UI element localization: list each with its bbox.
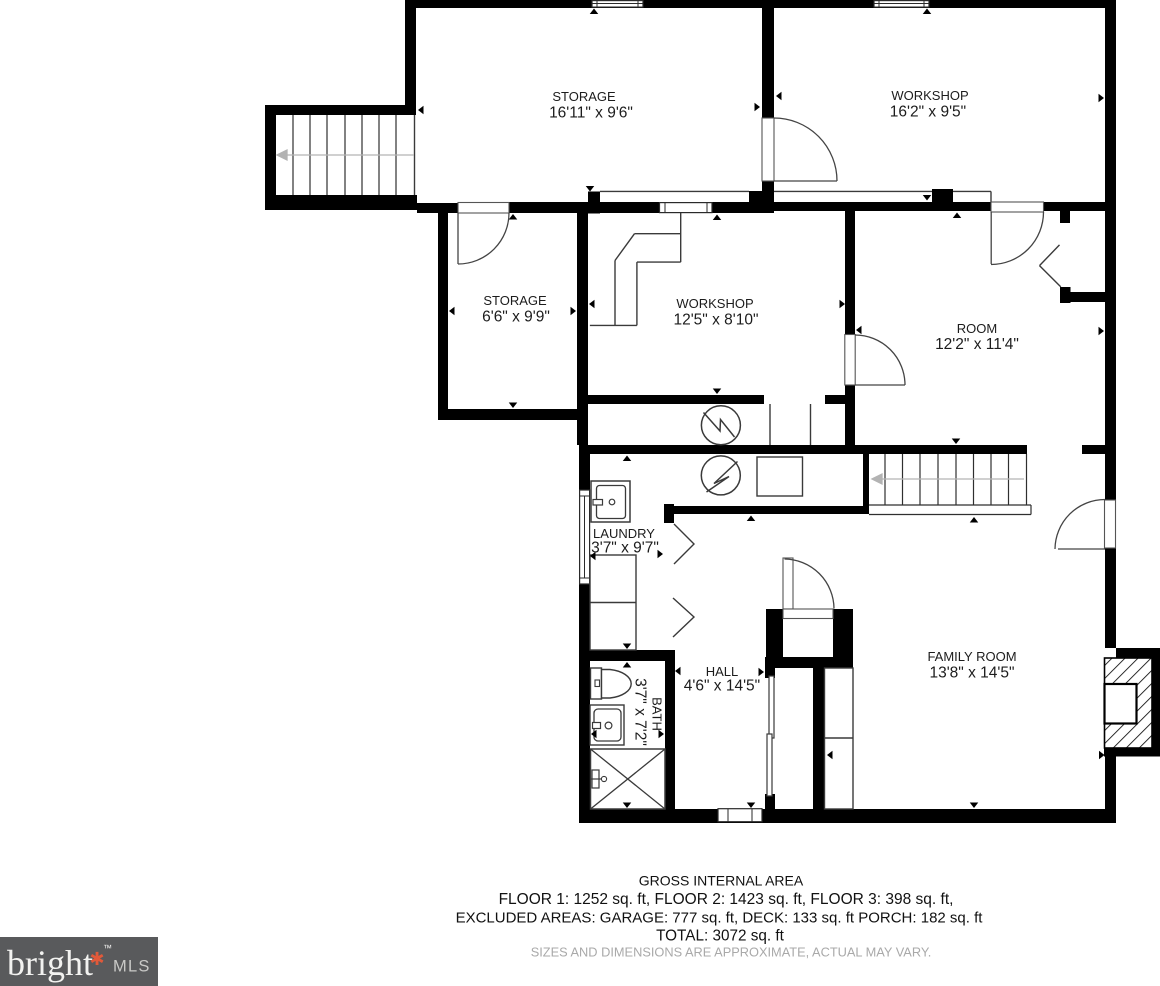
svg-text:GROSS INTERNAL AREA: GROSS INTERNAL AREA bbox=[639, 873, 804, 889]
svg-text:16'11" x 9'6": 16'11" x 9'6" bbox=[549, 105, 633, 122]
svg-text:STORAGE: STORAGE bbox=[552, 89, 616, 104]
svg-text:16'2" x 9'5": 16'2" x 9'5" bbox=[890, 104, 966, 121]
svg-text:3'7" x 7'2": 3'7" x 7'2" bbox=[632, 678, 649, 746]
svg-text:SIZES AND DIMENSIONS ARE APPRO: SIZES AND DIMENSIONS ARE APPROXIMATE, AC… bbox=[531, 945, 932, 960]
svg-text:WORKSHOP: WORKSHOP bbox=[891, 88, 968, 103]
svg-text:BATH: BATH bbox=[650, 697, 665, 731]
svg-text:bright: bright bbox=[7, 943, 93, 983]
svg-text:3'7" x 9'7": 3'7" x 9'7" bbox=[591, 540, 659, 557]
svg-text:ROOM: ROOM bbox=[957, 321, 997, 336]
svg-text:FAMILY ROOM: FAMILY ROOM bbox=[927, 649, 1016, 664]
svg-text:4'6" x 14'5": 4'6" x 14'5" bbox=[684, 678, 760, 695]
svg-text:EXCLUDED AREAS: GARAGE: 777 sq: EXCLUDED AREAS: GARAGE: 777 sq. ft, DECK… bbox=[456, 910, 984, 927]
svg-text:TOTAL: 3072 sq. ft: TOTAL: 3072 sq. ft bbox=[656, 928, 785, 945]
svg-text:13'8" x 14'5": 13'8" x 14'5" bbox=[929, 665, 1014, 682]
svg-text:MLS: MLS bbox=[113, 958, 151, 976]
svg-text:FLOOR 1: 1252 sq. ft, FLOOR 2:: FLOOR 1: 1252 sq. ft, FLOOR 2: 1423 sq. … bbox=[499, 891, 954, 908]
svg-text:12'5" x 8'10": 12'5" x 8'10" bbox=[673, 312, 758, 329]
svg-text:STORAGE: STORAGE bbox=[483, 293, 547, 308]
svg-text:WORKSHOP: WORKSHOP bbox=[676, 296, 753, 311]
svg-text:12'2" x 11'4": 12'2" x 11'4" bbox=[935, 336, 1019, 353]
svg-text:6'6" x 9'9": 6'6" x 9'9" bbox=[482, 309, 550, 326]
svg-text:™: ™ bbox=[103, 943, 112, 953]
